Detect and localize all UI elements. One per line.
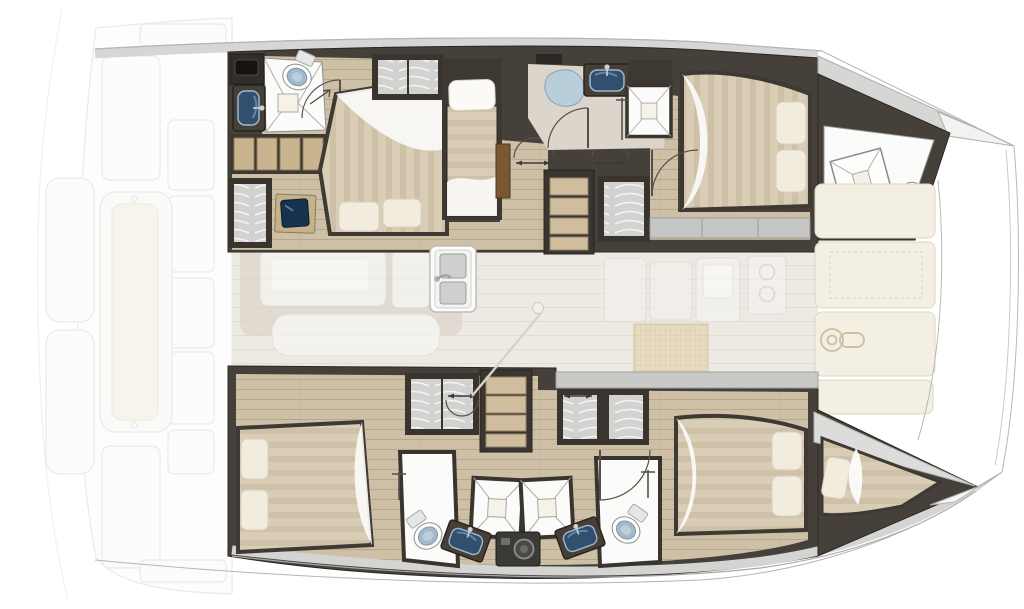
stairs (480, 370, 532, 452)
vanity-counter (230, 54, 264, 84)
wardrobe (375, 57, 441, 97)
shower-drain (278, 94, 298, 112)
floor-plan-page: Catamaran yacht interior floor plan — to… (0, 0, 1024, 609)
pillow (339, 202, 379, 231)
starboard-bow-berth (814, 410, 1002, 556)
wardrobe (606, 392, 646, 442)
pillow (772, 432, 802, 470)
nav-desk (275, 194, 316, 233)
pillow (772, 476, 802, 516)
pillow (241, 439, 268, 479)
galley-sink (430, 246, 476, 312)
side-deck-band (556, 372, 818, 388)
wardrobe (408, 376, 476, 432)
double-bed (676, 416, 806, 534)
shower-stall (627, 85, 671, 136)
double-bed (682, 73, 810, 210)
cockpit-bench (100, 192, 172, 432)
stove-ghost (748, 256, 786, 314)
washing-machine (496, 532, 540, 566)
aft-deck-ghost (38, 10, 232, 600)
sink (233, 85, 265, 131)
shower-pod (545, 70, 584, 106)
catamaran-floor-plan (0, 0, 1024, 609)
wardrobe (560, 392, 600, 442)
salon-table-ghost (240, 242, 462, 356)
pillow (448, 79, 495, 111)
vent (536, 54, 562, 64)
cabin-door (496, 144, 510, 198)
port-mid-bathroom (528, 54, 672, 150)
sink (584, 64, 630, 96)
stairs (544, 170, 594, 254)
pillow (776, 102, 806, 144)
double-bed (238, 422, 372, 552)
side-locker-band (650, 218, 810, 238)
wardrobe (601, 179, 647, 239)
pillow (241, 490, 268, 530)
wardrobe (231, 181, 269, 245)
port-single-berth (442, 58, 502, 220)
pillow (383, 199, 421, 227)
pillow (776, 150, 806, 192)
